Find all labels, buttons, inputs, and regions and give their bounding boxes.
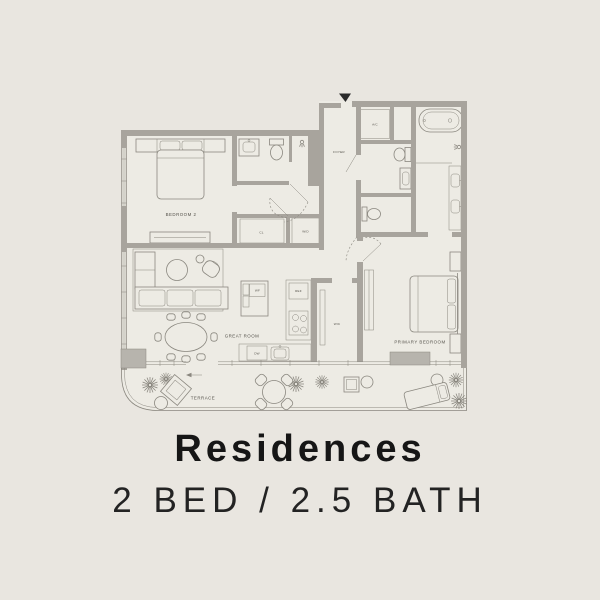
plant-icon [315,375,329,389]
foyer-label: FOYER [333,150,345,154]
floor-plan: BEDROOM 2 FOYER A/C CL W/D WIC WF REF DW… [0,0,600,435]
dresser-icon [150,232,210,243]
entry-arrow-icon [339,94,351,103]
bedroom-2-label: BEDROOM 2 [166,212,197,217]
washer-dryer-label: W/D [302,230,309,234]
sink-icon [400,168,411,189]
great-room-label: GREAT ROOM [225,334,260,339]
coffee-table-icon [167,260,188,281]
caption: Residences 2 BED / 2.5 BATH [0,428,600,521]
wine-fridge-label: WF [255,289,260,293]
side-table-icon [196,255,204,263]
floor-plan-drawing: BEDROOM 2 FOYER A/C CL W/D WIC WF REF DW… [0,0,600,430]
dishwasher-label: DW [254,352,260,356]
primary-wc [362,207,381,221]
nightstand-icon [450,334,461,353]
floor-plan-page: BEDROOM 2 FOYER A/C CL W/D WIC WF REF DW… [0,0,600,600]
toilet-icon [394,148,411,162]
column [121,349,146,368]
primary-bedroom-label: PRIMARY BEDROOM [394,340,445,345]
bed-icon [410,273,458,335]
page-subtitle: 2 BED / 2.5 BATH [0,481,600,521]
page-title: Residences [0,428,600,471]
side-table-icon [155,397,168,410]
vanity-sink-icon [239,139,259,156]
planter-bench [390,352,430,365]
bathtub-icon [419,109,463,132]
nightstand-icon [450,252,461,271]
toilet-icon [270,139,284,160]
wic-label: WIC [334,322,341,326]
kitchen-island-icon [241,281,268,316]
terrace-label: TERRACE [191,396,215,401]
ac-label: A/C [372,123,378,127]
refrigerator-label: REF [295,289,302,293]
closet-label: CL [259,231,263,235]
